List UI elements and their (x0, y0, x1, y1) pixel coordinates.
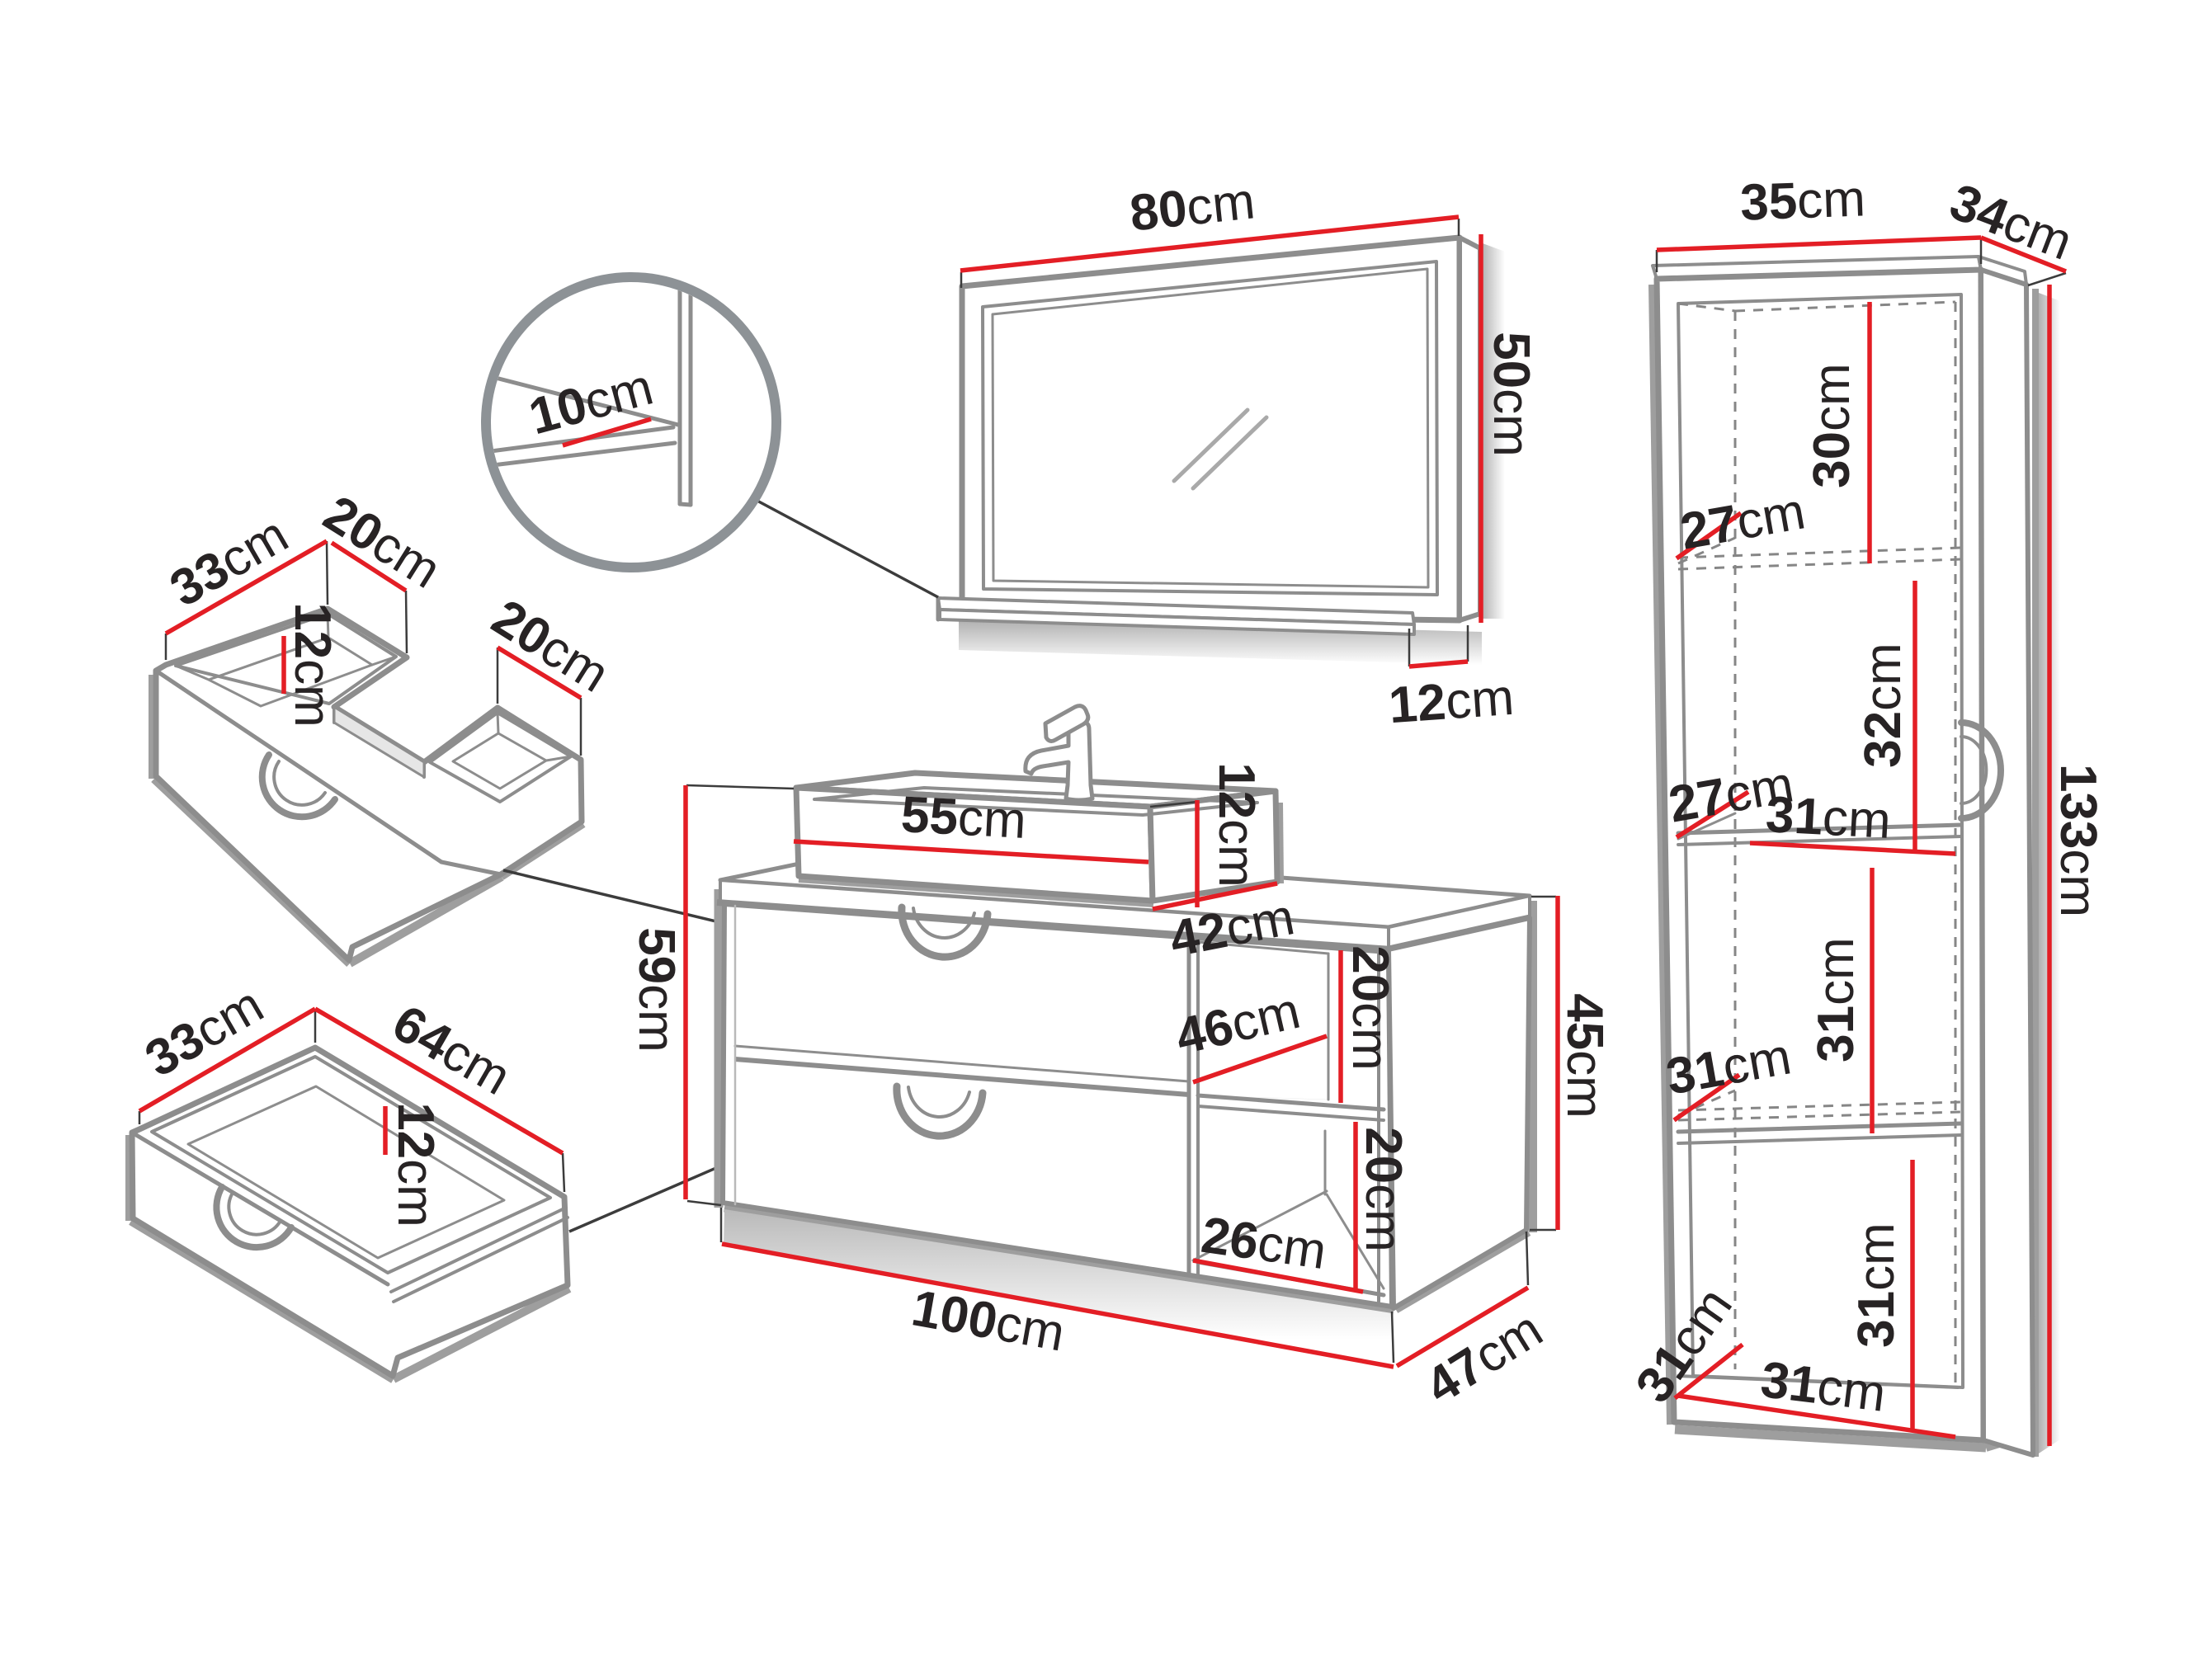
svg-text:32cm: 32cm (1855, 643, 1912, 768)
svg-text:20cm: 20cm (1342, 945, 1398, 1071)
svg-text:35cm: 35cm (1739, 170, 1866, 231)
svg-text:31cm: 31cm (1764, 786, 1892, 850)
svg-text:50cm: 50cm (1483, 332, 1540, 457)
svg-text:55cm: 55cm (899, 786, 1027, 850)
svg-text:12cm: 12cm (1208, 762, 1265, 888)
svg-text:12cm: 12cm (1387, 669, 1516, 734)
svg-text:59cm: 59cm (628, 927, 685, 1053)
svg-text:45cm: 45cm (1556, 993, 1613, 1119)
svg-text:12cm: 12cm (387, 1102, 444, 1227)
svg-text:133cm: 133cm (2049, 764, 2106, 917)
svg-text:20cm: 20cm (1355, 1127, 1412, 1252)
svg-text:31cm: 31cm (1848, 1222, 1905, 1348)
svg-text:30cm: 30cm (1804, 363, 1861, 488)
svg-text:12cm: 12cm (284, 602, 341, 728)
svg-text:31cm: 31cm (1808, 937, 1865, 1062)
